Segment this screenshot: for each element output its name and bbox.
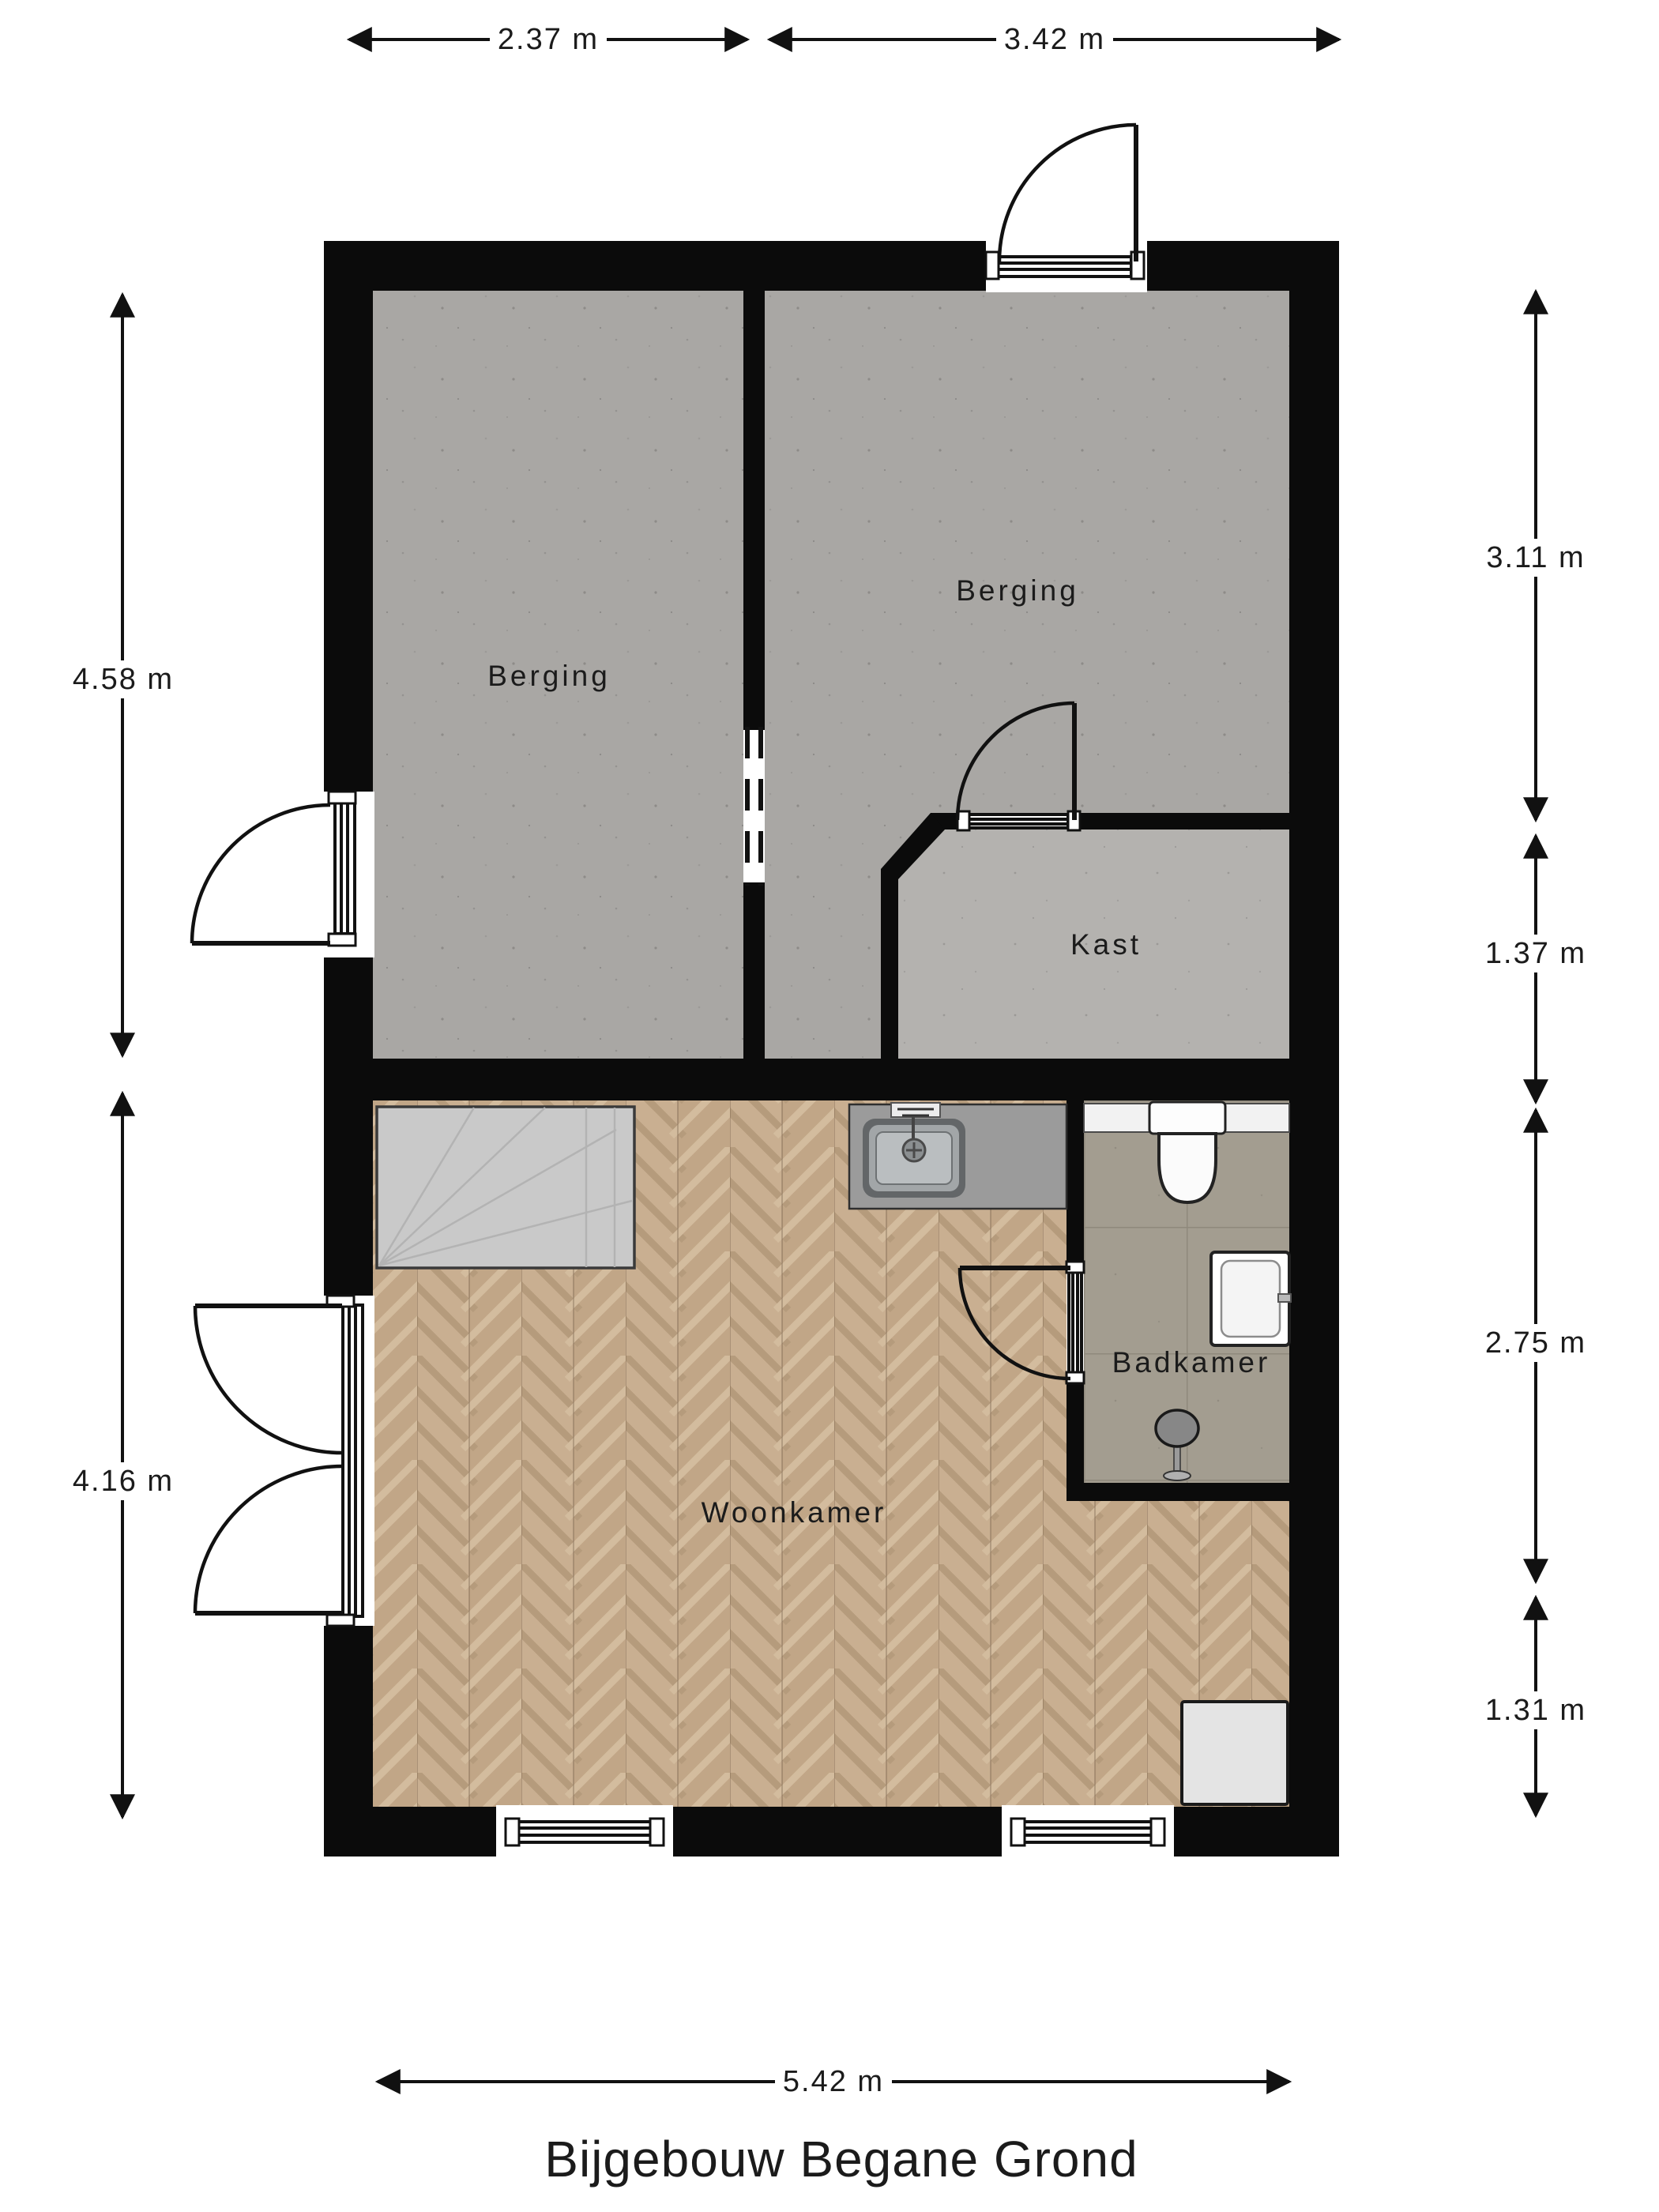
dim-left-lower-height: 4.16 m	[63, 1093, 183, 1817]
dim-right-badkamer-label: 2.75 m	[1485, 1326, 1586, 1360]
dim-top-left-width: 2.37 m	[349, 21, 747, 58]
cabinet-box	[1182, 1702, 1288, 1804]
berging-door-arc	[192, 805, 330, 943]
floor-plan-canvas: Berging Berging Kast Woonkamer Badkamer …	[0, 0, 1659, 2212]
french-door-top-arc	[195, 1306, 342, 1453]
entrance-door	[986, 125, 1144, 279]
room-berging-right-label: Berging	[956, 574, 1079, 607]
stairs	[377, 1107, 634, 1268]
dim-right-lower-height: 1.31 m	[1476, 1597, 1596, 1815]
dim-right-kast-height: 1.37 m	[1476, 836, 1596, 1102]
room-woonkamer-label: Woonkamer	[702, 1496, 887, 1529]
wall-kast-left	[881, 869, 898, 1059]
wall-badkamer-bottom	[1066, 1483, 1289, 1501]
dim-left-lower-label: 4.16 m	[73, 1465, 174, 1498]
dim-right-berging-label: 3.11 m	[1486, 541, 1585, 574]
dim-right-kast-label: 1.37 m	[1485, 937, 1586, 970]
wall-berging-divider	[743, 291, 765, 1059]
dim-bottom-label: 5.42 m	[783, 2065, 884, 2098]
dim-right-badkamer-height: 2.75 m	[1476, 1110, 1596, 1582]
room-badkamer-label: Badkamer	[1112, 1346, 1271, 1379]
french-door-bottom-arc	[195, 1466, 342, 1613]
wall-badkamer-left-upper	[1066, 1100, 1084, 1262]
bathtub-icon	[1211, 1252, 1291, 1345]
dim-top-left-label: 2.37 m	[498, 23, 599, 56]
dim-right-lower-label: 1.31 m	[1485, 1694, 1586, 1727]
page-title: Bijgebouw Begane Grond	[544, 2131, 1138, 2188]
dim-right-berging-height: 3.11 m	[1476, 292, 1596, 820]
dim-top-right-width: 3.42 m	[769, 21, 1339, 58]
floor-plan-page: Berging Berging Kast Woonkamer Badkamer …	[0, 0, 1659, 2212]
bathtub-faucet-icon	[1278, 1294, 1291, 1302]
opening-entrance	[986, 239, 1147, 292]
opening-window-bottom-left	[496, 1805, 673, 1858]
dim-top-right-label: 3.42 m	[1004, 23, 1105, 56]
dim-bottom-width: 5.42 m	[378, 2063, 1289, 2101]
opening-window-bottom-right	[1002, 1805, 1174, 1858]
kitchen-counter	[849, 1103, 1066, 1209]
wall-middle	[373, 1059, 1289, 1100]
dim-left-upper-label: 4.58 m	[73, 663, 174, 696]
dim-left-upper-height: 4.58 m	[63, 295, 183, 1055]
room-berging-left-label: Berging	[487, 660, 611, 692]
room-kast-label: Kast	[1070, 928, 1142, 961]
